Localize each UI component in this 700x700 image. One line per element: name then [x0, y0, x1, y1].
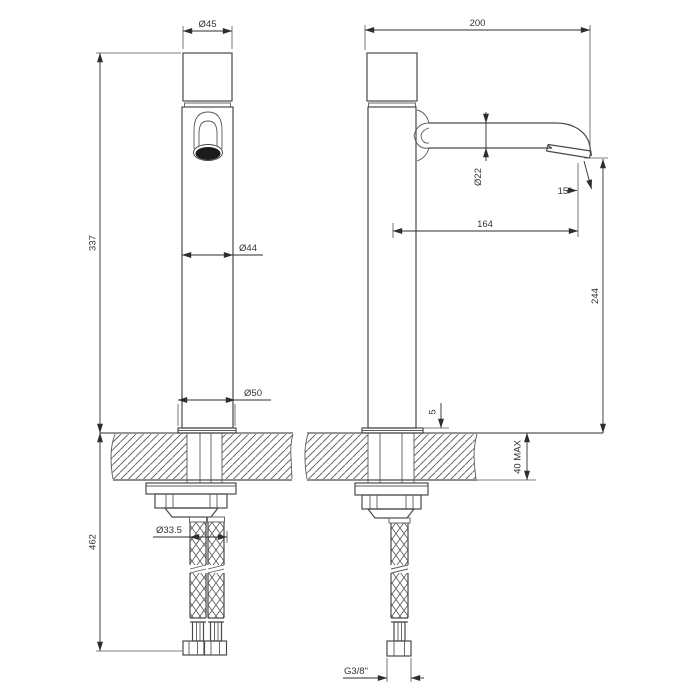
dim-base-diameter: Ø50 — [178, 388, 271, 426]
front-view — [100, 53, 293, 655]
dim-deck-thickness-max: 40 MAX — [477, 433, 536, 480]
deck-hatch — [222, 434, 293, 479]
dim-label-spout-reach: 164 — [477, 219, 493, 230]
side-hose — [387, 523, 411, 656]
dim-label-hose-thread: G3/8" — [344, 666, 368, 677]
front-hose-nut — [183, 641, 204, 655]
dim-label-body-diameter: Ø44 — [239, 243, 257, 254]
side-shank — [368, 433, 414, 483]
side-hose-nut — [387, 641, 411, 656]
deck-hatch — [111, 434, 187, 479]
side-body — [368, 107, 416, 428]
dim-height-above-deck: 337 — [88, 53, 182, 433]
dim-cap-diameter: Ø45 — [183, 19, 232, 49]
drawing-canvas: Ø45 337 462 Ø44 Ø50 — [0, 0, 700, 700]
front-fitting — [165, 508, 218, 517]
faucet-technical-drawing: Ø45 337 462 Ø44 Ø50 — [0, 0, 700, 700]
deck-hatch — [414, 434, 477, 479]
front-aerator-hole — [196, 147, 221, 160]
dim-label-below-deck: 462 — [88, 534, 99, 550]
dim-label-depth: 200 — [470, 18, 486, 29]
dim-depth: 200 — [365, 18, 590, 153]
dim-outlet-angle: 15° — [558, 161, 592, 237]
dimensions: Ø45 337 462 Ø44 Ø50 — [88, 18, 609, 682]
dim-body-diameter: Ø44 — [182, 243, 263, 255]
side-mounting-nut — [362, 495, 421, 509]
dim-label-base-plate-thickness: 5 — [428, 409, 439, 414]
side-fitting — [368, 509, 414, 518]
dim-label-spout-diameter: Ø22 — [473, 168, 484, 186]
side-view — [305, 53, 603, 656]
side-cap — [367, 53, 417, 101]
front-hose-nut — [205, 641, 227, 655]
dim-hose-thread: G3/8" — [343, 658, 424, 682]
dim-spout-height: 244 — [584, 158, 608, 433]
front-shank — [187, 433, 222, 483]
front-cap — [183, 53, 232, 101]
front-washer — [146, 483, 236, 494]
deck-hatch — [305, 434, 368, 479]
front-hoses — [183, 522, 227, 655]
dim-label-height: 337 — [88, 235, 99, 251]
side-spout — [429, 123, 592, 158]
dim-label-outlet-angle: 15° — [558, 186, 573, 197]
dim-label-cap-diameter: Ø45 — [199, 19, 217, 30]
dim-base-plate-thickness: 5 — [421, 403, 449, 428]
dim-label-hole-diameter: Ø33.5 — [156, 525, 182, 536]
dim-label-spout-height: 244 — [590, 288, 601, 304]
dim-label-base-diameter: Ø50 — [244, 388, 262, 399]
side-washer — [355, 483, 428, 495]
front-spout-outer — [194, 112, 222, 149]
dim-label-deck-thickness-max: 40 MAX — [513, 439, 524, 473]
dim-spout-reach: 164 — [393, 219, 578, 238]
